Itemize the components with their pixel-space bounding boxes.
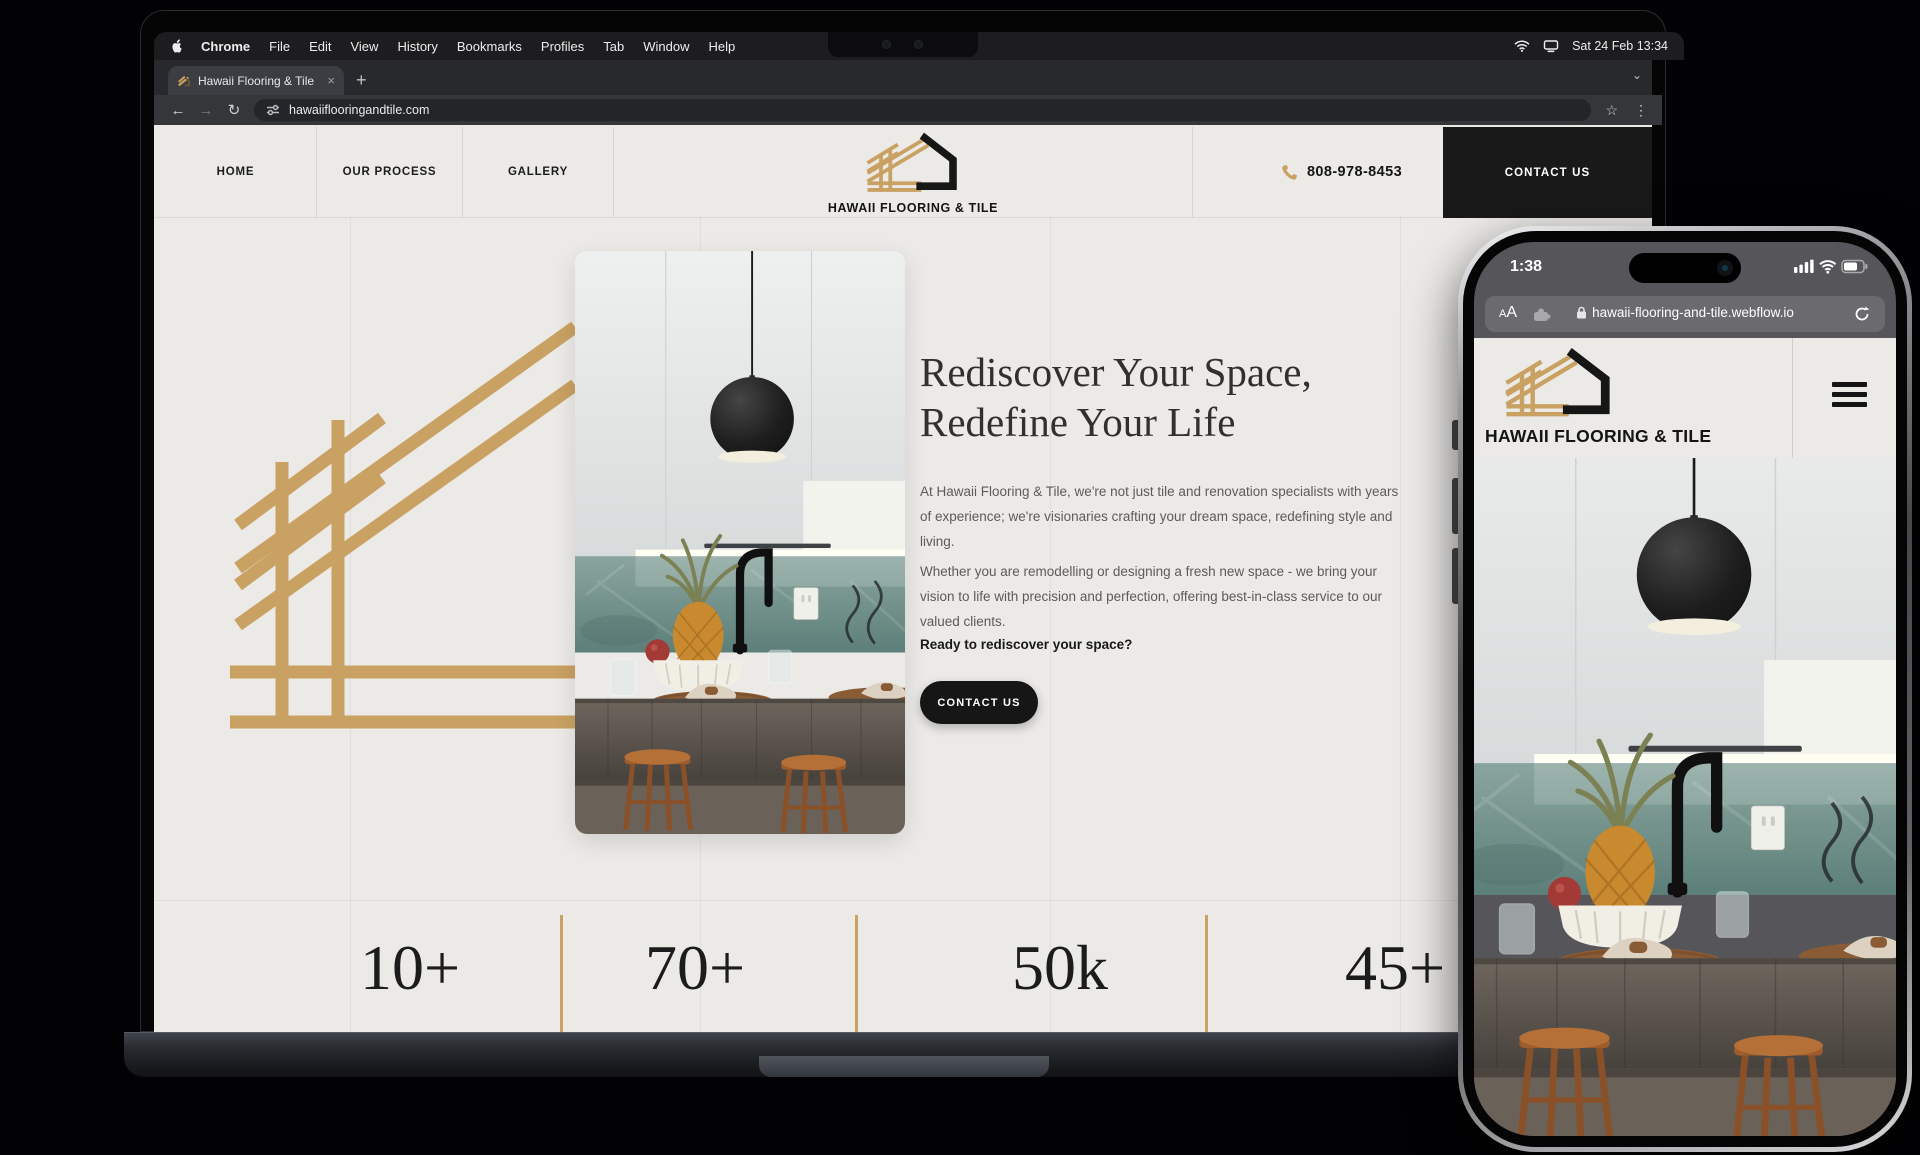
phone-number: 808-978-8453	[1307, 164, 1402, 180]
browser-menu-icon[interactable]: ⋮	[1634, 102, 1648, 119]
stat-value: 70+	[585, 931, 805, 1005]
url-bar[interactable]: hawaiiflooringandtile.com	[254, 99, 1591, 121]
hero-heading-line2: Redefine Your Life	[920, 397, 1440, 447]
hamburger-menu-icon[interactable]	[1832, 382, 1867, 412]
nav-link-home[interactable]: HOME	[154, 127, 317, 217]
menubar-item-view[interactable]: View	[350, 39, 378, 54]
mobile-url: hawaii-flooring-and-tile.webflow.io	[1592, 305, 1794, 320]
reload-button[interactable]: ↻	[220, 101, 248, 119]
nav-contact-us-button[interactable]: CONTACT US	[1443, 127, 1652, 218]
canvas: Chrome File Edit View History Bookmarks …	[0, 0, 1920, 1155]
menubar-item-history[interactable]: History	[397, 39, 437, 54]
menubar-item-edit[interactable]: Edit	[309, 39, 331, 54]
nav-link-gallery[interactable]: GALLERY	[463, 127, 613, 217]
chrome-tabstrip: Hawaii Flooring & Tile × + ⌄	[154, 60, 1652, 95]
mobile-hero-image	[1474, 458, 1896, 1136]
tab-search-chevron-icon[interactable]: ⌄	[1632, 68, 1642, 82]
safari-url-bar[interactable]: AA hawaii-flooring-and-tile.webflow.io	[1485, 296, 1885, 332]
stats-gold-bar	[855, 915, 858, 1032]
hero-paragraph-2: Whether you are remodelling or designing…	[920, 559, 1402, 634]
stat-value: 50k	[950, 931, 1170, 1005]
site-viewport: HOME OUR PROCESS GALLERY HAWAII FLOORING…	[154, 125, 1652, 1032]
site-navbar: HOME OUR PROCESS GALLERY HAWAII FLOORING…	[154, 127, 1652, 218]
menubar-item-chrome[interactable]: Chrome	[201, 39, 250, 54]
menubar-item-file[interactable]: File	[269, 39, 290, 54]
hero-heading-line1: Rediscover Your Space,	[920, 347, 1440, 397]
menubar-item-profiles[interactable]: Profiles	[541, 39, 584, 54]
mobile-url-text[interactable]: hawaii-flooring-and-tile.webflow.io	[1485, 305, 1885, 320]
gold-frame-graphic	[230, 315, 580, 745]
status-bar-icons	[1794, 259, 1868, 274]
mobile-header-divider	[1792, 338, 1793, 458]
menubar-clock[interactable]: Sat 24 Feb 13:34	[1572, 39, 1668, 53]
forward-button[interactable]: →	[192, 102, 220, 119]
back-button[interactable]: ←	[164, 102, 192, 119]
nav-divider	[1192, 127, 1193, 217]
new-tab-button[interactable]: +	[356, 69, 367, 91]
site-settings-icon[interactable]	[266, 104, 280, 116]
stats-divider-line	[154, 900, 1652, 901]
nav-link-label: HOME	[217, 166, 255, 178]
hero-contact-us-button[interactable]: CONTACT US	[920, 681, 1038, 724]
nav-phone[interactable]: 808-978-8453	[1244, 127, 1439, 217]
tab-close-icon[interactable]: ×	[327, 73, 335, 88]
cellular-signal-icon	[1794, 260, 1814, 273]
laptop-base	[124, 1032, 1684, 1077]
mobile-brand-logo-icon[interactable]	[1500, 346, 1618, 420]
mobile-brand-name: HAWAII FLOORING & TILE	[1485, 426, 1711, 447]
nav-link-label: GALLERY	[508, 166, 568, 178]
mobile-site-header: HAWAII FLOORING & TILE	[1474, 338, 1896, 458]
menubar-item-window[interactable]: Window	[643, 39, 689, 54]
iphone-screen: 1:38 AA	[1474, 242, 1896, 1136]
brand-name: HAWAII FLOORING & TILE	[813, 201, 1013, 215]
browser-tab[interactable]: Hawaii Flooring & Tile ×	[168, 66, 344, 95]
nav-link-label: OUR PROCESS	[343, 166, 437, 178]
tab-favicon	[177, 74, 191, 88]
menubar-item-help[interactable]: Help	[709, 39, 736, 54]
nav-divider	[613, 127, 614, 217]
contact-label: CONTACT US	[1505, 167, 1591, 179]
url-text[interactable]: hawaiiflooringandtile.com	[289, 103, 429, 117]
dynamic-island	[1629, 253, 1741, 283]
nav-link-our-process[interactable]: OUR PROCESS	[317, 127, 462, 217]
cta-label: CONTACT US	[937, 697, 1020, 709]
macbook-notch	[828, 32, 978, 57]
lock-icon	[1576, 306, 1587, 319]
hero-question: Ready to rediscover your space?	[920, 637, 1132, 652]
brand-logo-icon	[862, 131, 964, 195]
phone-icon	[1281, 164, 1298, 181]
hero-heading: Rediscover Your Space, Redefine Your Lif…	[920, 347, 1440, 447]
menubar-item-tab[interactable]: Tab	[603, 39, 624, 54]
hero-image	[575, 251, 905, 834]
battery-icon	[1842, 261, 1867, 273]
screen-mirroring-icon[interactable]	[1543, 40, 1559, 53]
bookmark-star-icon[interactable]: ☆	[1605, 102, 1618, 119]
menubar-item-bookmarks[interactable]: Bookmarks	[457, 39, 522, 54]
stat-value: 10+	[300, 931, 520, 1005]
front-camera-icon	[1717, 260, 1733, 276]
hero-paragraph-1: At Hawaii Flooring & Tile, we're not jus…	[920, 479, 1402, 554]
apple-icon[interactable]	[170, 39, 183, 54]
wifi-icon	[1820, 261, 1836, 274]
stats-gold-bar	[560, 915, 563, 1032]
site-logo[interactable]: HAWAII FLOORING & TILE	[813, 131, 1013, 217]
tab-title: Hawaii Flooring & Tile	[198, 74, 320, 88]
status-bar-time: 1:38	[1510, 258, 1542, 276]
iphone-mockup: 1:38 AA	[1458, 226, 1912, 1152]
chrome-toolbar: ← → ↻ hawaiiflooringandtile.com ☆ ⋮	[154, 95, 1662, 125]
reload-icon[interactable]	[1853, 305, 1871, 323]
laptop-base-notch	[759, 1056, 1049, 1077]
wifi-icon[interactable]	[1514, 40, 1530, 52]
stats-gold-bar	[1205, 915, 1208, 1032]
